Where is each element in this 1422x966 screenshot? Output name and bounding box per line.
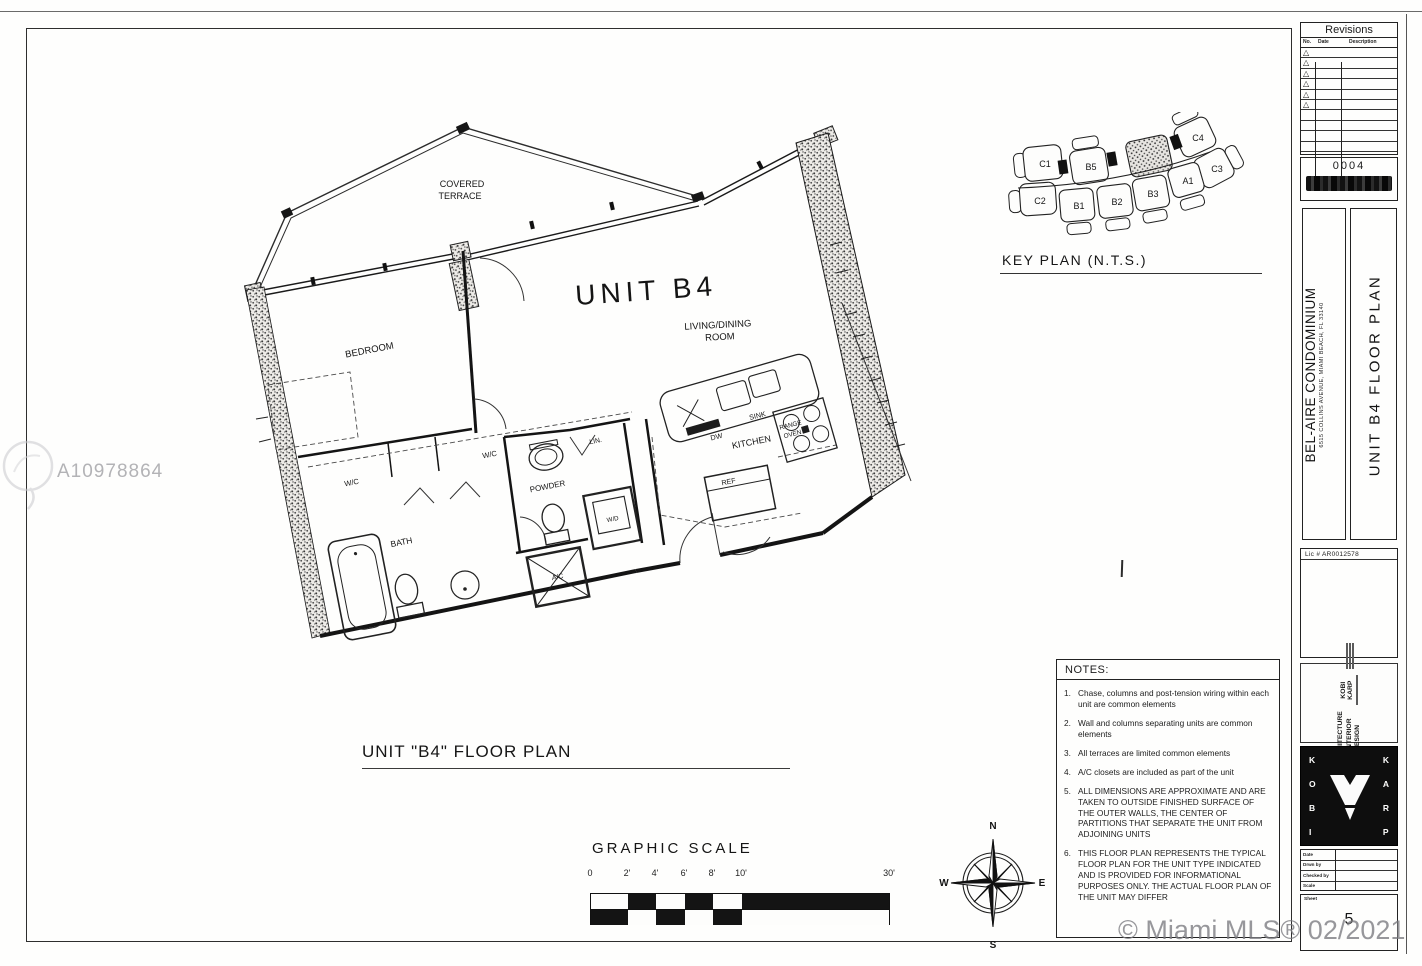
kobi-karp-logo: KOBI KARP bbox=[1300, 746, 1398, 846]
scale-tick: 10' bbox=[735, 868, 747, 878]
info-row-date: Date bbox=[1301, 850, 1397, 861]
compass-south-label: S bbox=[990, 940, 997, 951]
sheet-title: UNIT B4 FLOOR PLAN bbox=[1366, 274, 1383, 475]
compass-north-label: N bbox=[989, 821, 996, 832]
note-6: 6.THIS FLOOR PLAN REPRESENTS THE TYPICAL… bbox=[1064, 848, 1272, 903]
scale-tick: 6' bbox=[681, 868, 688, 878]
listing-id-watermark: A10978864 bbox=[57, 461, 163, 483]
scale-tick: 4' bbox=[652, 868, 659, 878]
svg-text:C1: C1 bbox=[1039, 159, 1051, 169]
info-row-scale: Scale bbox=[1301, 882, 1397, 892]
sink-powder bbox=[526, 439, 565, 473]
info-row-checked-by: Checked by bbox=[1301, 871, 1397, 882]
covered-terrace-railing bbox=[252, 122, 705, 294]
svg-text:C2: C2 bbox=[1034, 196, 1046, 206]
stamp-number: 0004 bbox=[1301, 158, 1397, 172]
bath-fixtures bbox=[327, 439, 641, 641]
compass-rose: N S W E bbox=[938, 815, 1048, 953]
mls-watermark-logo bbox=[0, 438, 62, 510]
paper-right-edge bbox=[1406, 14, 1407, 954]
drawing-info-table: Date Drwn by Checked by Scale bbox=[1300, 849, 1398, 891]
svg-text:A1: A1 bbox=[1182, 176, 1193, 186]
scale-tick: 30' bbox=[883, 868, 895, 878]
revisions-table: Revisions No. Date Description △ △ △ △ △… bbox=[1300, 22, 1398, 155]
revisions-rows: △ △ △ △ △ △ bbox=[1301, 48, 1397, 152]
note-4: 4.A/C closets are included as part of th… bbox=[1064, 767, 1272, 778]
kitchen-fixtures bbox=[657, 352, 837, 521]
key-plan-underline bbox=[1000, 273, 1262, 274]
left-exterior-wall bbox=[246, 287, 330, 638]
sheet-label: Sheet bbox=[1304, 897, 1317, 902]
firm-card: ARCHITECTURE & INTERIOR DESIGN KOBI KARP bbox=[1300, 663, 1398, 743]
note-1: 1.Chase, columns and post-tension wiring… bbox=[1064, 688, 1272, 710]
revisions-column-headers: No. Date Description bbox=[1301, 38, 1397, 48]
unit-name-label: UNIT B4 bbox=[574, 270, 718, 311]
graphic-scale-title: GRAPHIC SCALE bbox=[592, 840, 753, 857]
svg-text:COVERED: COVERED bbox=[440, 179, 485, 189]
compass-west-label: W bbox=[939, 878, 949, 889]
graphic-scale-bar bbox=[590, 893, 890, 925]
info-row-drawn-by: Drwn by bbox=[1301, 861, 1397, 872]
scale-tick: 8' bbox=[709, 868, 716, 878]
license-box: Lic # AR0012578 bbox=[1300, 548, 1398, 658]
mls-credit-watermark: © Miami MLS® 02/2021 bbox=[1118, 915, 1405, 946]
exterior-window-wall bbox=[252, 135, 828, 297]
stamp-box: 0004 bbox=[1300, 157, 1398, 201]
svg-text:C4: C4 bbox=[1192, 133, 1204, 143]
compass-east-label: E bbox=[1039, 878, 1046, 889]
key-plan-drawing: C1 B5 C4 C2 B1 B2 B3 A1 C3 bbox=[992, 112, 1272, 262]
svg-text:DW: DW bbox=[709, 431, 723, 443]
revisions-title: Revisions bbox=[1301, 23, 1397, 38]
svg-text:W/C: W/C bbox=[344, 477, 361, 489]
svg-text:B3: B3 bbox=[1147, 189, 1158, 199]
svg-text:OVEN: OVEN bbox=[783, 429, 803, 440]
architect-stamp-illegible bbox=[1306, 176, 1392, 191]
svg-text:A/C: A/C bbox=[551, 573, 564, 582]
firm-contact-illegible bbox=[1344, 643, 1355, 669]
floor-plan-drawing: UNIT B4 LIVING/DINING ROOM COVERED TERRA… bbox=[180, 85, 930, 695]
svg-text:B1: B1 bbox=[1073, 201, 1084, 211]
svg-text:B5: B5 bbox=[1085, 162, 1096, 172]
structural-columns bbox=[245, 126, 838, 311]
svg-text:LIN.: LIN. bbox=[589, 437, 603, 446]
svg-text:W/D: W/D bbox=[606, 515, 620, 524]
kk-monogram-icon bbox=[1328, 773, 1372, 821]
note-5: 5.ALL DIMENSIONS ARE APPROXIMATE AND ARE… bbox=[1064, 786, 1272, 841]
firm-name: KOBI KARP bbox=[1340, 675, 1354, 705]
svg-text:POWDER: POWDER bbox=[529, 479, 566, 495]
svg-text:SINK: SINK bbox=[748, 409, 767, 422]
svg-text:W/C: W/C bbox=[482, 449, 499, 461]
toilet-bath bbox=[391, 572, 425, 618]
logo-word-kobi: KOBI bbox=[1309, 755, 1316, 837]
scale-tick: 0 bbox=[587, 868, 592, 878]
graphic-scale-ticks: 0 2' 4' 6' 8' 10' 30' bbox=[590, 868, 890, 880]
scan-edge-line bbox=[0, 11, 1422, 12]
drawing-sheet: A10978864 © Miami MLS® 02/2021 bbox=[0, 0, 1422, 966]
scale-tick: 2' bbox=[624, 868, 631, 878]
sheet-title-box: UNIT B4 FLOOR PLAN bbox=[1350, 208, 1397, 540]
license-number: Lic # AR0012578 bbox=[1301, 549, 1397, 560]
key-plan-label: KEY PLAN (N.T.S.) bbox=[1002, 252, 1147, 268]
svg-text:TERRACE: TERRACE bbox=[438, 191, 481, 201]
svg-text:ROOM: ROOM bbox=[705, 331, 735, 344]
logo-word-karp: KARP bbox=[1383, 755, 1389, 837]
svg-text:B2: B2 bbox=[1111, 197, 1122, 207]
notes-title: NOTES: bbox=[1057, 660, 1279, 680]
project-address: 6515 COLLINS AVENUE, MIAMI BEACH, FL 331… bbox=[1319, 209, 1325, 541]
sink-bath bbox=[451, 571, 479, 599]
project-name: BEL-AIRE CONDOMINIUM bbox=[1303, 209, 1318, 541]
toilet-powder bbox=[539, 502, 570, 545]
svg-text:BEDROOM: BEDROOM bbox=[344, 340, 394, 360]
room-labels: UNIT B4 LIVING/DINING ROOM COVERED TERRA… bbox=[344, 179, 803, 582]
refrigerator-unit bbox=[704, 465, 775, 520]
plan-title: UNIT "B4" FLOOR PLAN bbox=[362, 742, 571, 762]
notes-box: NOTES: 1.Chase, columns and post-tension… bbox=[1056, 659, 1280, 938]
keyplan-unit-b4-highlighted bbox=[1125, 134, 1174, 178]
bathtub bbox=[327, 533, 397, 641]
note-2: 2.Wall and columns separating units are … bbox=[1064, 718, 1272, 740]
note-3: 3.All terraces are limited common elemen… bbox=[1064, 748, 1272, 759]
plan-title-underline bbox=[362, 768, 790, 769]
svg-text:C3: C3 bbox=[1211, 164, 1223, 174]
svg-text:LIVING/DINING: LIVING/DINING bbox=[684, 318, 752, 332]
svg-text:KITCHEN: KITCHEN bbox=[731, 433, 772, 450]
svg-text:BATH: BATH bbox=[390, 535, 414, 549]
project-name-box: BEL-AIRE CONDOMINIUM 6515 COLLINS AVENUE… bbox=[1302, 208, 1346, 540]
party-wall bbox=[796, 133, 911, 497]
